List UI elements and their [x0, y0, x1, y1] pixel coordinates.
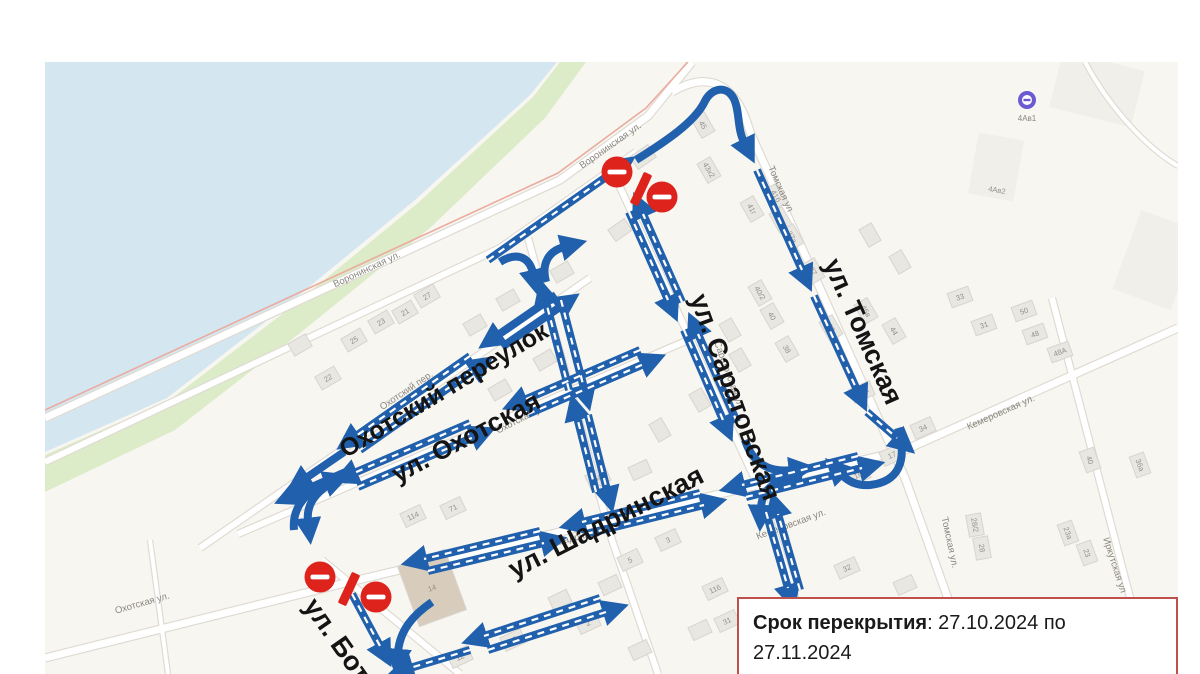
map-canvas[interactable]: 2523212227504543х241б41г39а37а3740/24038…	[45, 62, 1178, 674]
no-entry-sign	[361, 582, 392, 613]
closure-period-line2: 27.11.2024	[753, 642, 852, 664]
building: 28	[973, 536, 992, 560]
road-closure-scheme-page: 2523212227504543х241б41г39а37а3740/24038…	[0, 0, 1200, 674]
no-entry-sign	[647, 182, 678, 213]
no-entry-sign	[305, 562, 336, 593]
building-number: 28	[977, 543, 987, 553]
no-entry-sign	[602, 157, 633, 188]
transit-stop-icon-bar	[1024, 99, 1031, 101]
closure-period-label: Срок перекрытия	[753, 612, 927, 634]
building: 28/2	[966, 513, 985, 537]
closure-period-box: Срок перекрытия: 27.10.2024 по 27.11.202…	[737, 597, 1178, 674]
closure-period-line1: : 27.10.2024 по	[927, 612, 1066, 634]
transit-stop-label: 4Ав1	[1018, 114, 1037, 123]
closure-map-svg: 2523212227504543х241б41г39а37а3740/24038…	[45, 62, 1178, 674]
